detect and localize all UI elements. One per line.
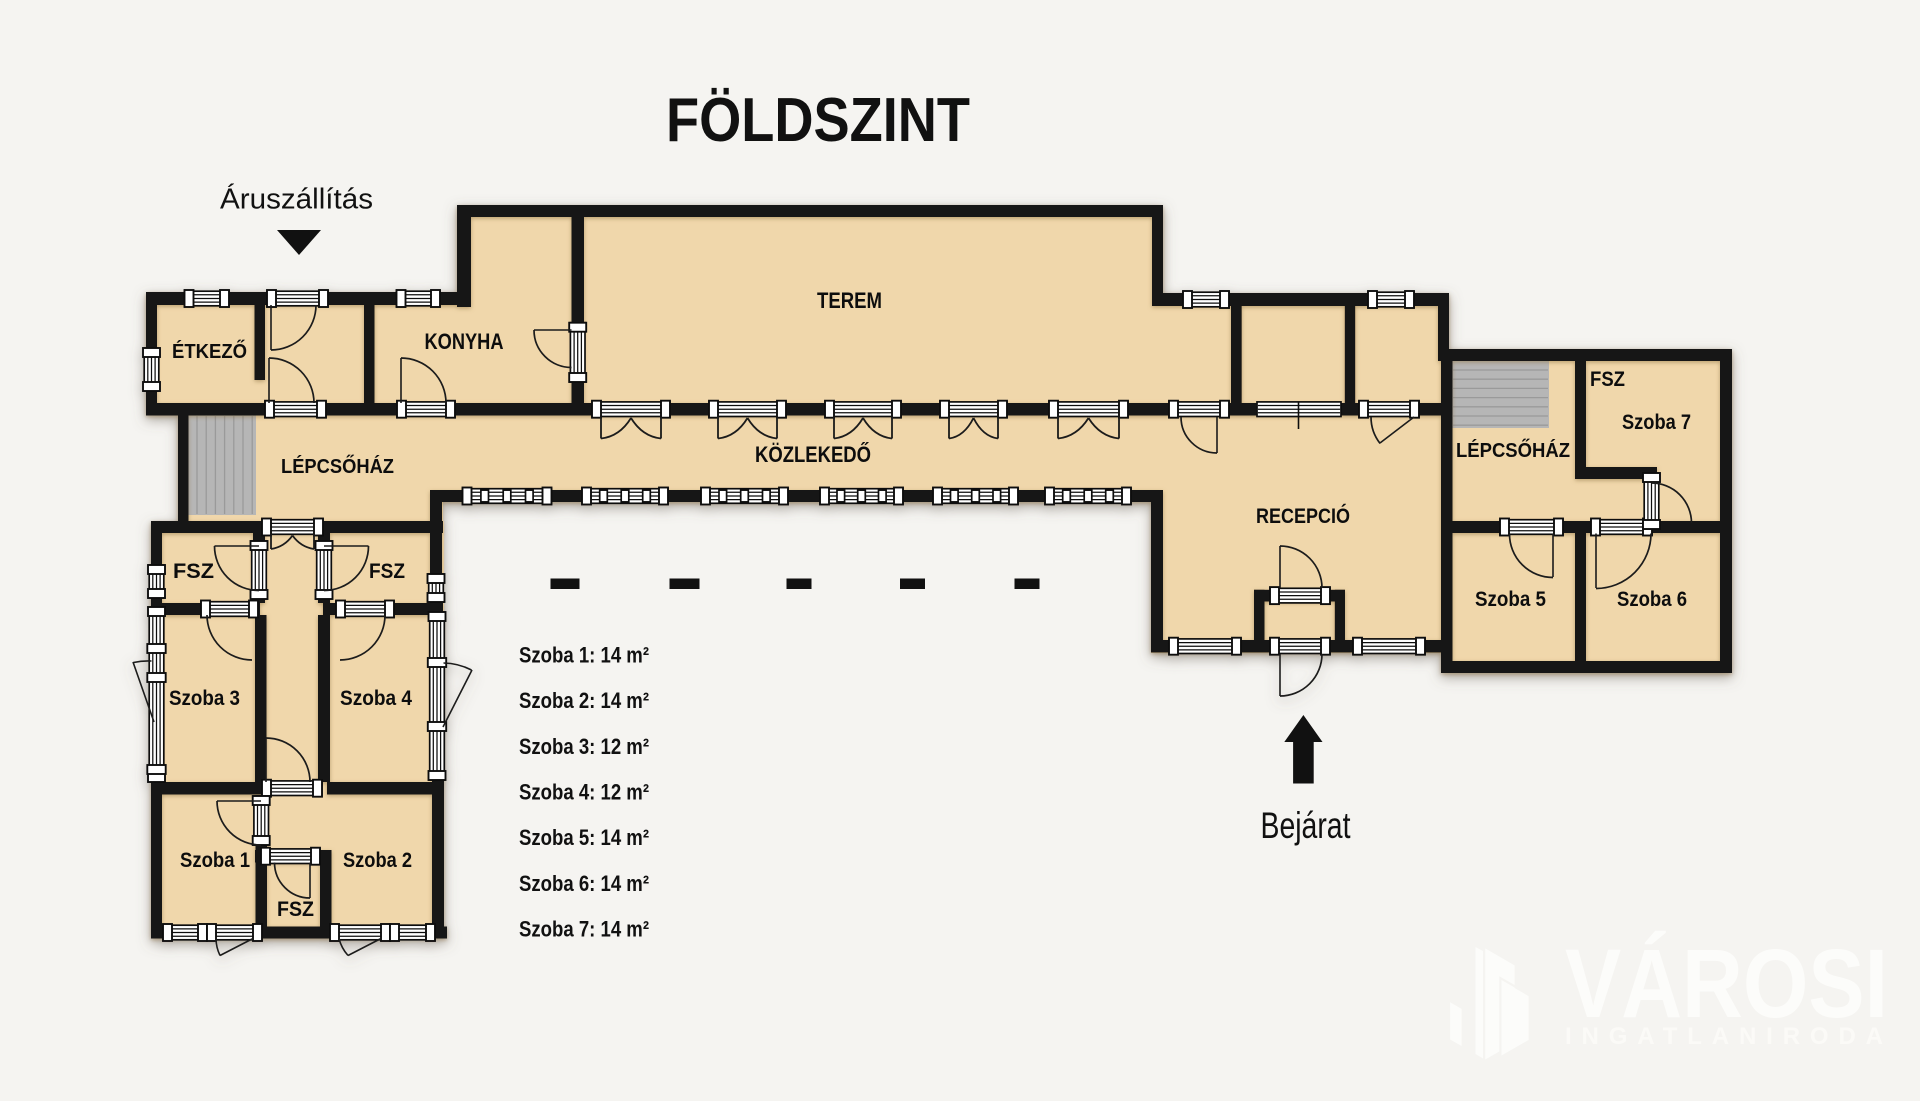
svg-text:TEREM: TEREM <box>817 288 882 313</box>
svg-text:LÉPCSŐHÁZ: LÉPCSŐHÁZ <box>281 455 394 478</box>
svg-text:Szoba 5: 14 m²: Szoba 5: 14 m² <box>519 825 649 850</box>
svg-text:FSZ: FSZ <box>1590 368 1625 391</box>
svg-text:Szoba 5: Szoba 5 <box>1475 588 1546 611</box>
svg-text:Áruszállítás: Áruszállítás <box>220 183 373 216</box>
svg-text:Szoba 6: Szoba 6 <box>1617 588 1687 611</box>
svg-text:Szoba 3: Szoba 3 <box>169 687 240 710</box>
svg-text:FÖLDSZINT: FÖLDSZINT <box>666 86 970 155</box>
svg-text:KÖZLEKEDŐ: KÖZLEKEDŐ <box>755 442 871 467</box>
svg-text:Szoba 6: 14 m²: Szoba 6: 14 m² <box>519 871 649 896</box>
svg-text:Bejárat: Bejárat <box>1261 805 1352 846</box>
svg-text:VÁROSI: VÁROSI <box>1565 929 1888 1038</box>
svg-text:Szoba 1: 14 m²: Szoba 1: 14 m² <box>519 642 649 667</box>
svg-text:Szoba 2: 14 m²: Szoba 2: 14 m² <box>519 688 649 713</box>
svg-text:Szoba 4: Szoba 4 <box>340 687 412 710</box>
svg-text:Szoba 2: Szoba 2 <box>343 849 412 872</box>
svg-text:Szoba 7: Szoba 7 <box>1622 411 1691 434</box>
svg-text:Szoba 4: 12 m²: Szoba 4: 12 m² <box>519 780 649 805</box>
svg-text:Szoba 3: 12 m²: Szoba 3: 12 m² <box>519 734 649 759</box>
svg-text:KONYHA: KONYHA <box>425 329 504 354</box>
svg-text:Szoba 7: 14 m²: Szoba 7: 14 m² <box>519 917 649 942</box>
svg-text:Szoba 1: Szoba 1 <box>180 849 250 872</box>
svg-text:ÉTKEZŐ: ÉTKEZŐ <box>172 340 247 363</box>
svg-text:FSZ: FSZ <box>369 560 405 583</box>
svg-text:FSZ: FSZ <box>173 560 214 583</box>
svg-text:RECEPCIÓ: RECEPCIÓ <box>1256 504 1350 528</box>
svg-text:LÉPCSŐHÁZ: LÉPCSŐHÁZ <box>1456 439 1570 462</box>
svg-text:FSZ: FSZ <box>277 898 314 921</box>
